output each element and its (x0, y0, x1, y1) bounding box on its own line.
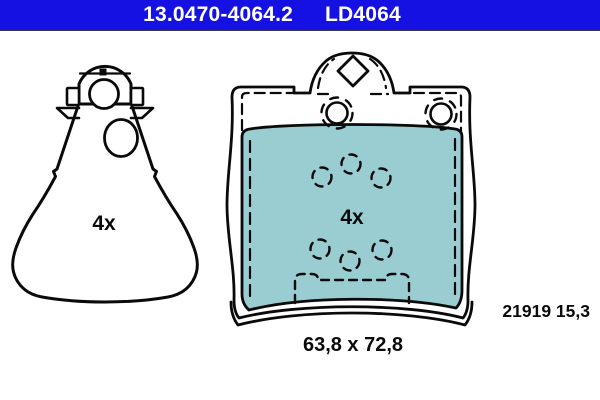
brake-pad-drawing-icon (227, 53, 475, 325)
lower-hole (105, 120, 138, 157)
left-pin-hole (327, 103, 348, 124)
top-clip-mark (100, 69, 107, 76)
brake-pad-quantity-label: 4x (332, 206, 372, 230)
right-pin-hole (431, 104, 452, 125)
product-technical-image: 13.0470-4064.2 LD4064 (0, 0, 600, 400)
upper-hole (90, 80, 119, 109)
dimensions-label: 63,8 x 72,8 (278, 334, 428, 357)
accessory-quantity-label: 4x (84, 212, 124, 236)
spec-label: 21919 15,3 (480, 301, 590, 322)
accessory-drawing-icon (13, 66, 198, 302)
